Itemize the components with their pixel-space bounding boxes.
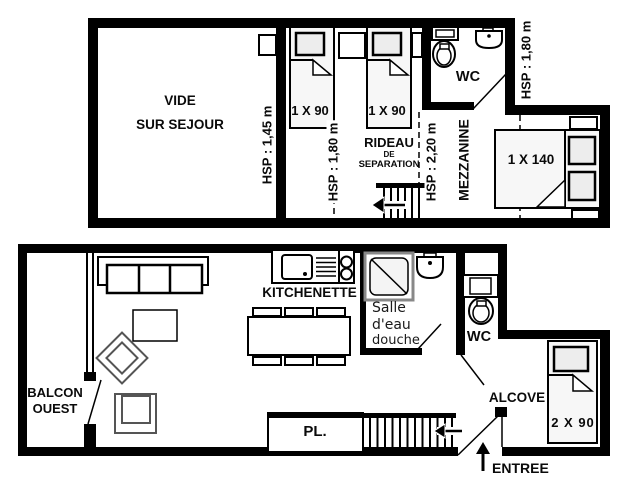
burner-icon [341, 257, 352, 268]
double-bed-140-icon [495, 130, 600, 208]
bed2-label: 1 X 90 [362, 104, 412, 118]
kitchenette-icon [272, 250, 354, 283]
bed140-label: 1 X 140 [500, 153, 562, 167]
stairs-icon-upper [372, 183, 425, 218]
floorplan-canvas: VIDE SUR SEJOUR HSP : 1,45 m 1 X 90 1 X … [0, 0, 636, 483]
hsp-145-label: HSP : 1,45 m [261, 104, 274, 187]
stairs-arrow-left-upper [372, 197, 406, 213]
floorplan-drawing [0, 0, 636, 483]
hsp-220-label: HSP : 2,20 m [425, 121, 438, 204]
toilet-icon-lower [463, 275, 498, 324]
wc-label-lower: WC [458, 330, 500, 345]
salle-eau-label-line3: douche [372, 333, 420, 348]
balcon-label-line1: BALCON [20, 386, 90, 400]
salle-eau-label-line2: d'eau [372, 317, 411, 333]
entree-label: ENTREE [492, 461, 549, 476]
bed1-label: 1 X 90 [285, 104, 335, 118]
shower-room-door-swing [418, 324, 441, 349]
toilet-icon-upper [432, 27, 458, 67]
alcove-label: ALCOVE [482, 391, 552, 405]
hsp-180-mid-label: HSP : 1,80 m [327, 121, 340, 204]
mezzanine-label: MEZZANINE [458, 117, 471, 203]
rideau-label-line3: SEPARATION [352, 160, 426, 170]
coffee-table-icon [133, 310, 177, 341]
entrance-arrow-icon [476, 442, 490, 471]
washbasin-icon-upper [476, 28, 502, 48]
wc-label-upper: WC [448, 70, 488, 85]
dining-table-icon [248, 317, 350, 355]
kitchen-sink-icon [282, 255, 312, 279]
burner-icon [341, 269, 352, 280]
bed290-label: 2 X 90 [546, 416, 600, 430]
armchair-icon [115, 394, 156, 433]
entrance-door-swing [458, 414, 500, 455]
balcony-window [87, 253, 93, 372]
kitchenette-label: KITCHENETTE [252, 286, 367, 300]
salle-eau-label-line1: Salle [372, 300, 406, 316]
hsp-180-right-label: HSP : 1,80 m [520, 19, 533, 102]
sofa-icon [98, 257, 208, 293]
wc-door-swing [461, 355, 484, 385]
pl-label: PL. [285, 424, 345, 440]
rideau-label-line1: RIDEAU [352, 136, 426, 150]
washbasin-icon-lower [417, 253, 443, 278]
shower-icon [365, 253, 413, 300]
room-label-vide: VIDE [110, 94, 250, 108]
room-label-vide-2: SUR SEJOUR [110, 118, 250, 132]
balcon-label-line2: OUEST [20, 402, 90, 416]
